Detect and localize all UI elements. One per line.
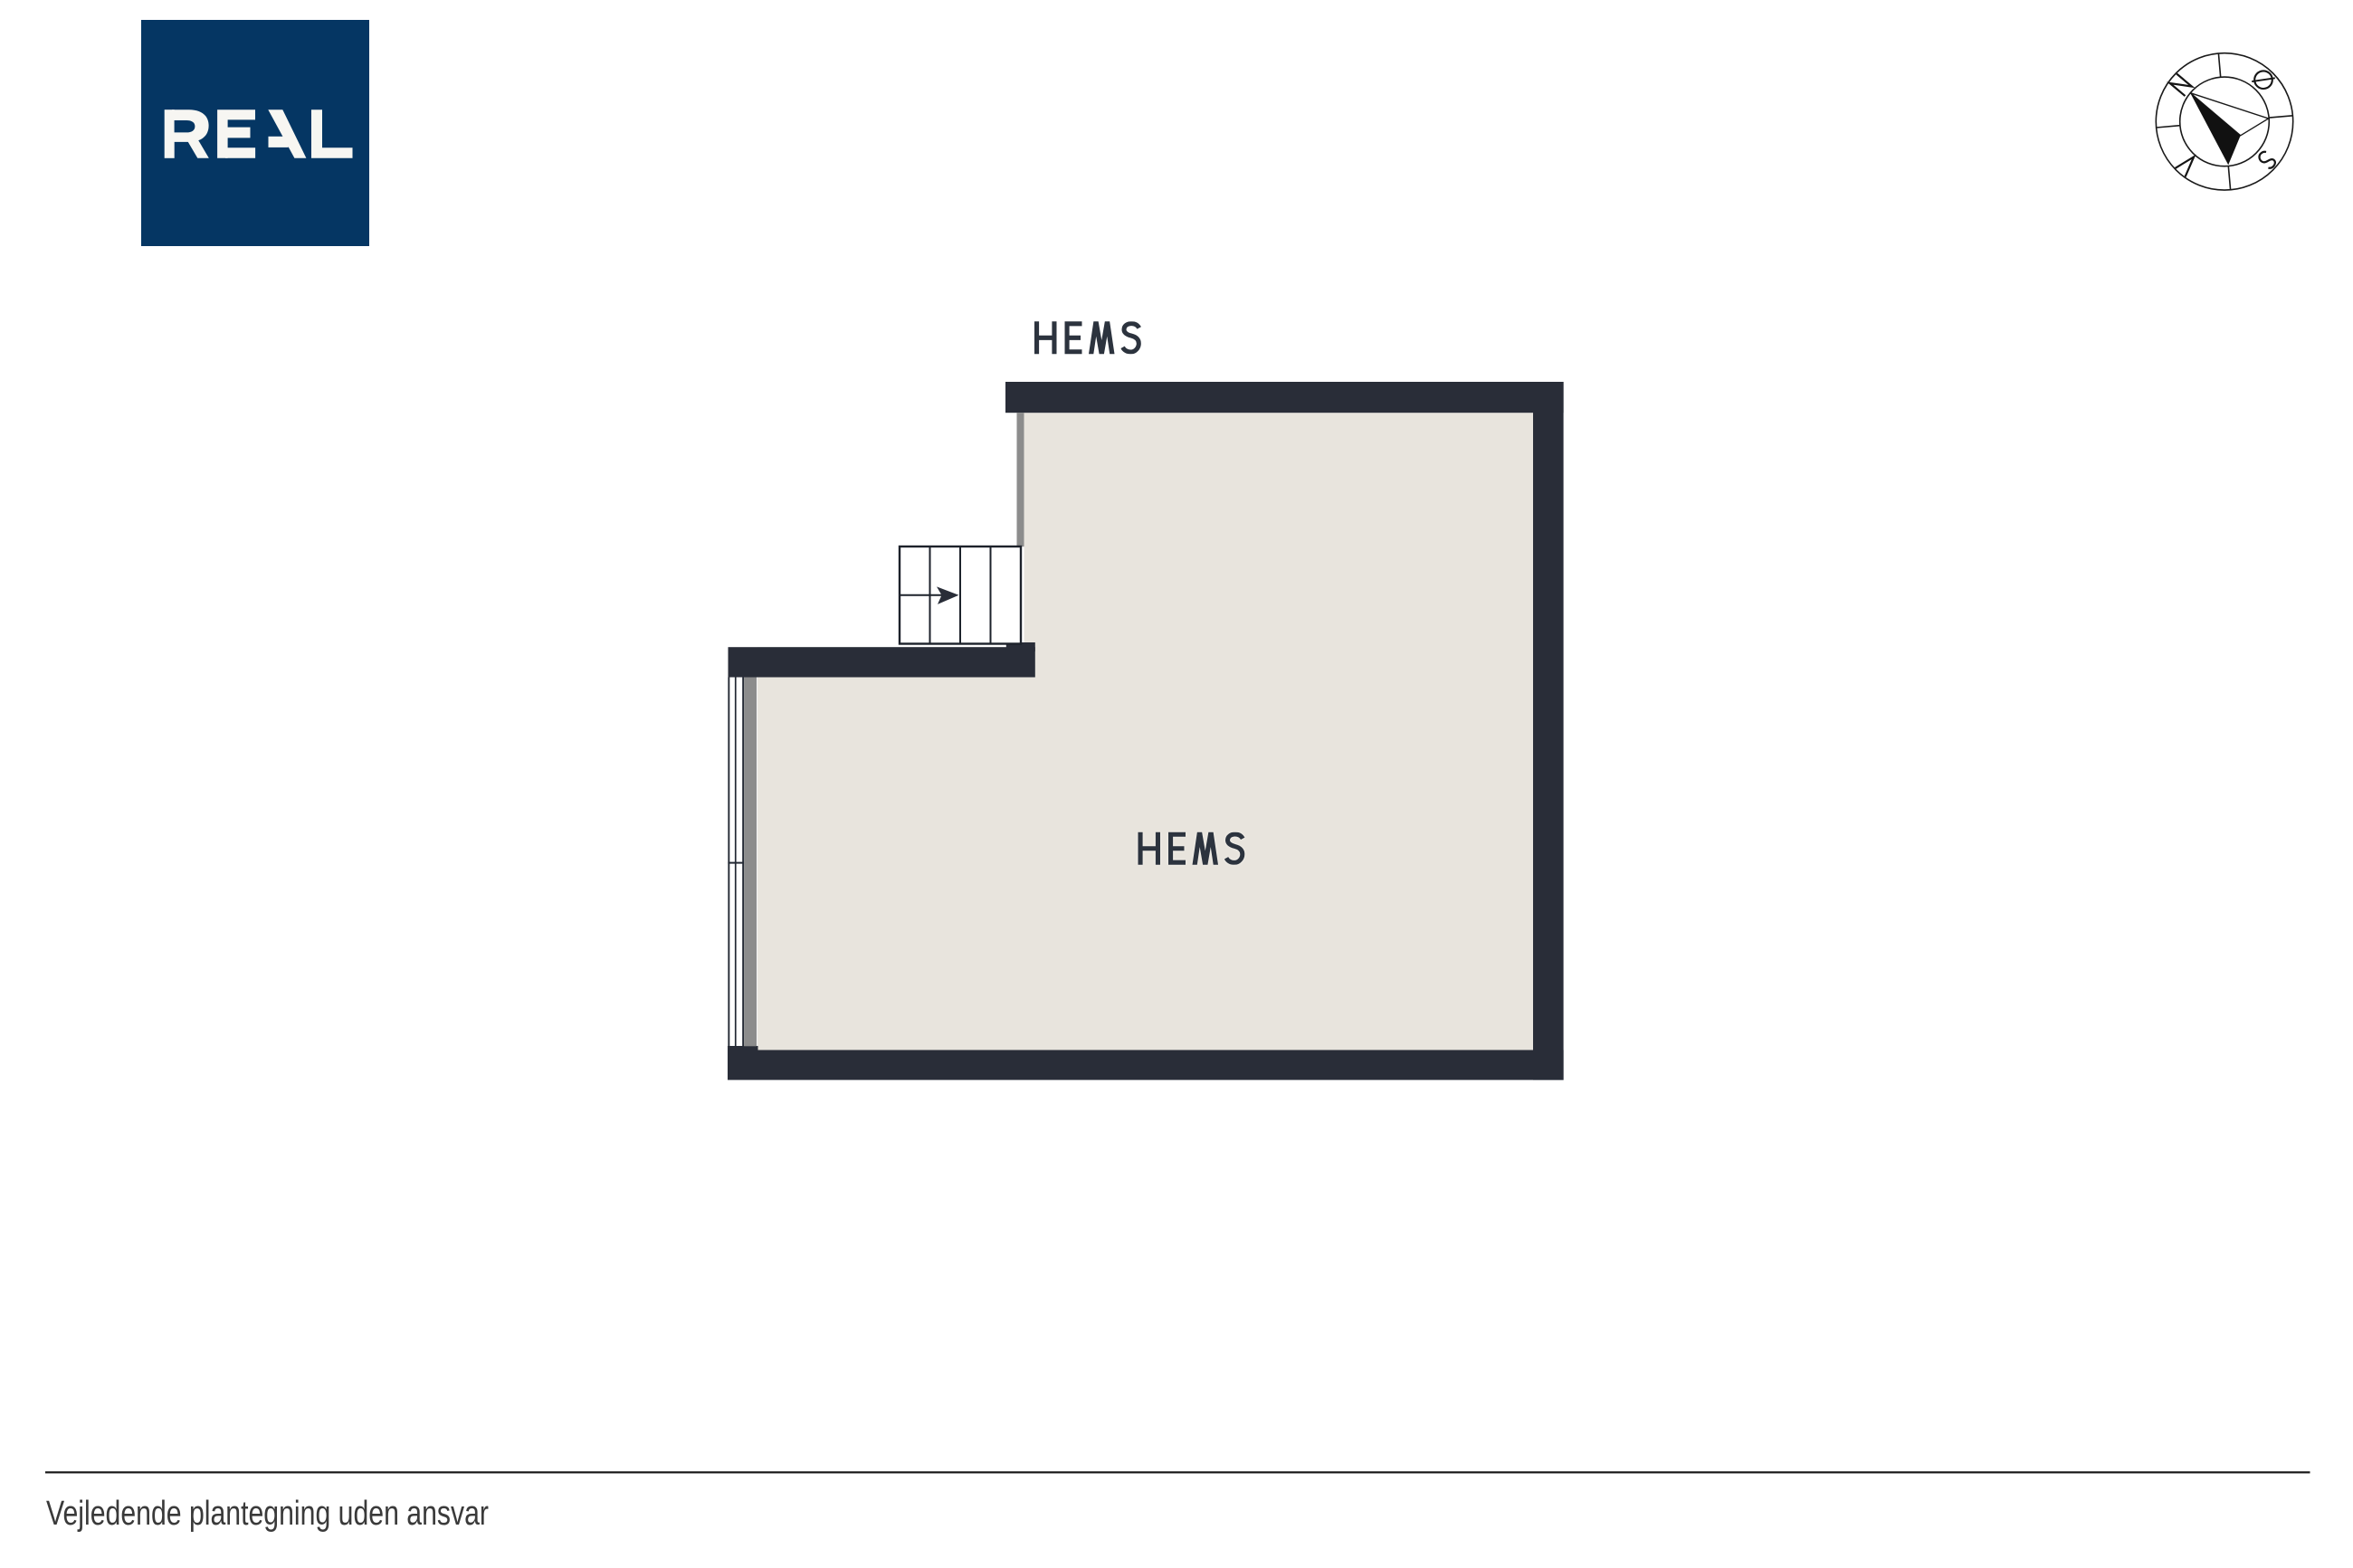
svg-text:Vejledende plantegning uden an: Vejledende plantegning uden ansvar — [46, 1495, 489, 1533]
